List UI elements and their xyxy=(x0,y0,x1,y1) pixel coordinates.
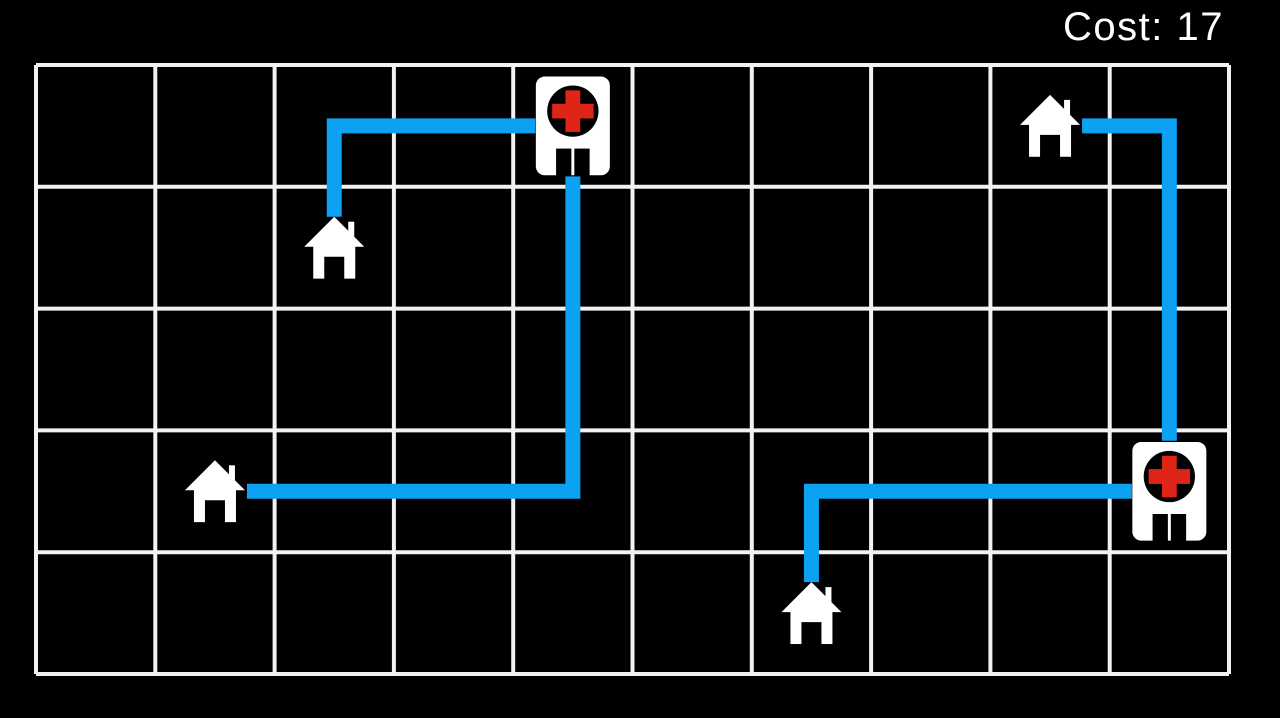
game-board[interactable] xyxy=(0,0,1280,718)
route-house4-hospital2[interactable] xyxy=(811,491,1131,582)
route-house1-hospital1[interactable] xyxy=(334,126,535,217)
grid-lines xyxy=(36,65,1229,674)
house-icon[interactable] xyxy=(185,460,245,522)
house-icon[interactable] xyxy=(1020,95,1080,157)
route-paths xyxy=(247,126,1169,582)
house-icon[interactable] xyxy=(304,217,364,279)
house-icon[interactable] xyxy=(781,582,841,644)
hospital-icon[interactable] xyxy=(536,77,610,177)
route-hospital1-house2[interactable] xyxy=(247,176,573,491)
route-house3-hospital2[interactable] xyxy=(1082,126,1169,441)
hospital-icon[interactable] xyxy=(1132,442,1206,542)
